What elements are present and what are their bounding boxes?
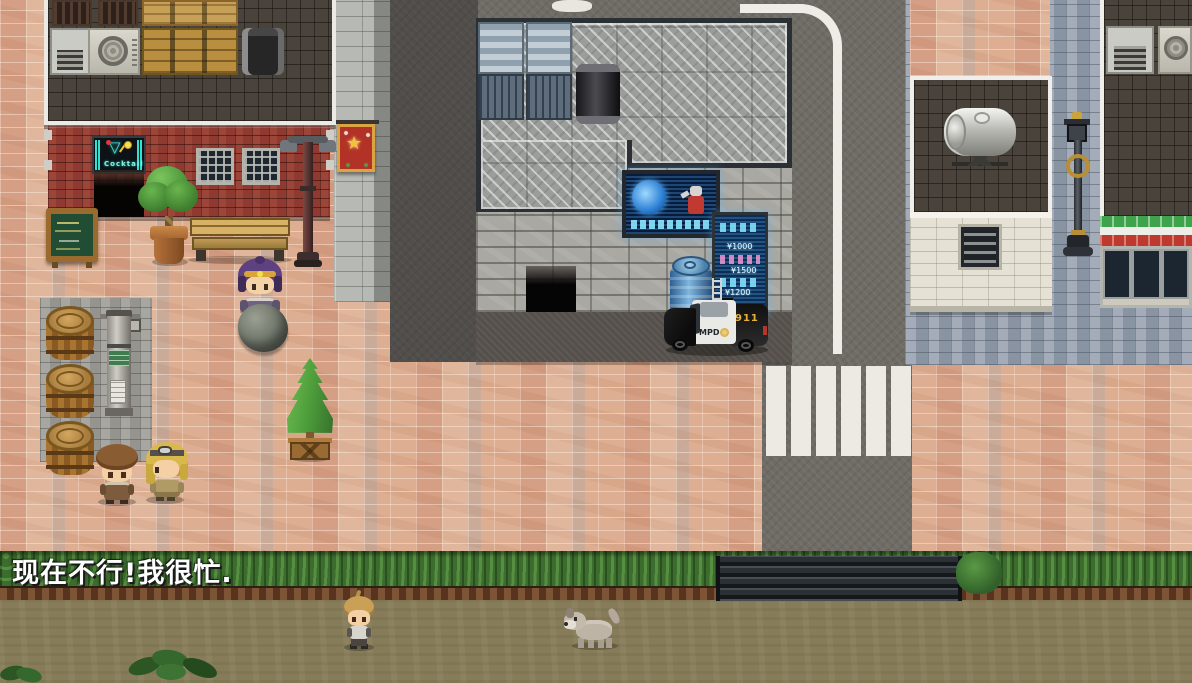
npc-boy[interactable]: [338, 594, 380, 652]
metal-door-icon: [98, 0, 138, 26]
topiary-tree: [284, 358, 336, 462]
metal-signpost[interactable]: [100, 310, 144, 416]
billboard-text-glow: [631, 220, 711, 229]
wooden-crate-light: [142, 0, 238, 26]
dog[interactable]: [564, 606, 624, 652]
pink-patch-top-right: [910, 0, 1050, 76]
metal-door-icon: [52, 0, 92, 26]
neon-stripe: [95, 140, 101, 170]
fern-plant-small: [0, 664, 44, 683]
corner-stone: [44, 130, 52, 140]
car-cabin: MPD: [692, 300, 736, 344]
stair-steps[interactable]: [716, 556, 962, 601]
banner-star-icon: ★: [346, 133, 362, 154]
dialogue-text[interactable]: 现在不行!我很忙.: [12, 556, 233, 592]
car-wheel: [672, 338, 688, 351]
store-ac-unit: [1158, 26, 1192, 74]
npc-brown-haired-man[interactable]: [92, 444, 142, 506]
barred-window: [242, 148, 280, 185]
robot-figure-icon: [686, 186, 706, 216]
lamp-wreath-icon: [1066, 154, 1090, 178]
road-line-vertical: [833, 44, 842, 354]
bar-doorway[interactable]: [94, 170, 144, 217]
antique-street-lamp: [1056, 112, 1098, 264]
road-line-horizontal: [740, 4, 804, 13]
wooden-crate-dark: [142, 28, 238, 75]
chalkboard-sign[interactable]: [46, 208, 98, 268]
alley-shadow: [390, 0, 478, 362]
wooden-barrel[interactable]: [44, 421, 96, 477]
boulder[interactable]: [238, 304, 288, 352]
npc-blonde-goggles-woman[interactable]: [140, 442, 192, 504]
vending-price: ¥1500: [731, 266, 756, 275]
shipping-container: [526, 22, 572, 120]
police-car-door-label: MPD: [699, 328, 719, 337]
store-window-band: [1100, 246, 1192, 308]
red-banner[interactable]: ★: [337, 124, 375, 172]
car-wheel: [738, 339, 754, 352]
barred-window: [196, 148, 234, 185]
water-tank: [944, 108, 1016, 174]
dog-ear: [566, 608, 574, 618]
hedge-bush: [956, 552, 1002, 594]
police-badge-icon: [720, 328, 729, 337]
goggles-lens: [158, 446, 172, 455]
wall-vent: [958, 224, 1002, 270]
black-machine: [242, 28, 284, 75]
roof-pipe: [576, 64, 620, 124]
store-awning: [1100, 216, 1192, 246]
crosswalk: [766, 366, 916, 456]
taillight: [763, 326, 767, 335]
wooden-barrel[interactable]: [44, 306, 96, 362]
vending-price: ¥1000: [727, 242, 752, 251]
globe-icon: [632, 180, 666, 214]
roof-vent-unit: [50, 28, 90, 75]
holographic-billboard[interactable]: [622, 170, 720, 238]
corner-stone: [44, 160, 52, 170]
lemon-slice-icon: [124, 141, 132, 149]
wooden-barrel[interactable]: [44, 364, 96, 420]
warehouse-roof-extension: [476, 140, 632, 214]
game-viewport: ★ ▽ Cocktail: [0, 0, 1192, 683]
fern-plant: [126, 650, 222, 683]
shipping-container: [478, 22, 524, 120]
police-car-rear-label: 911: [735, 313, 759, 324]
store-roof-vent: [1106, 26, 1154, 74]
warehouse-doorway[interactable]: [526, 266, 576, 312]
street-lamp: [280, 132, 336, 266]
road-white-patch: [552, 0, 592, 12]
police-car[interactable]: 911 MPD: [664, 292, 770, 358]
tank-building-wall: [910, 212, 1052, 312]
cherry-icon: [106, 140, 111, 145]
ac-unit-icon: [88, 28, 140, 75]
